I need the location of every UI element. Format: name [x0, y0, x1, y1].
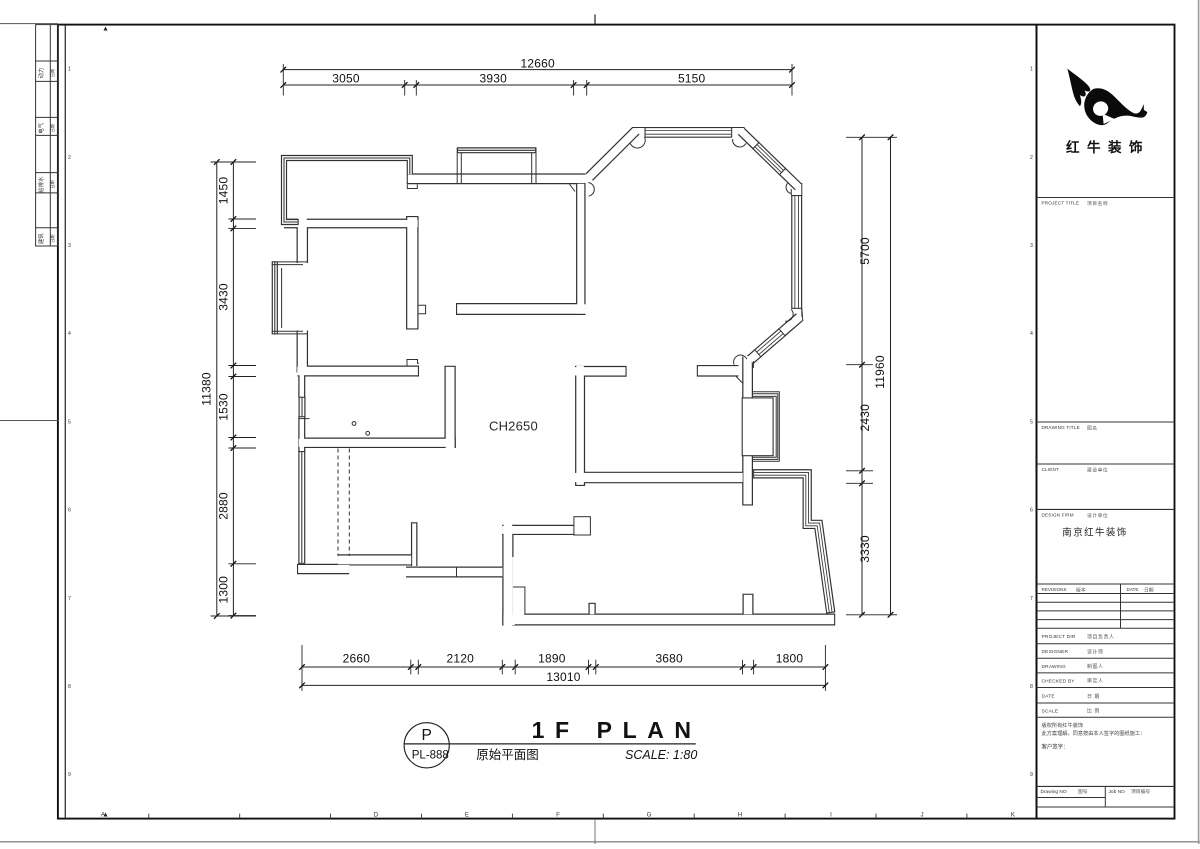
svg-text:客户签字：: 客户签字：	[1042, 743, 1069, 751]
svg-text:2: 2	[68, 155, 71, 161]
svg-text:图名: 图名	[1087, 425, 1098, 432]
svg-text:1300: 1300	[216, 576, 230, 604]
svg-text:PL-888: PL-888	[412, 750, 449, 762]
svg-text:建筑: 建筑	[37, 233, 45, 244]
svg-text:3680: 3680	[655, 652, 683, 666]
svg-text:1: 1	[1030, 67, 1033, 73]
svg-text:5150: 5150	[678, 72, 706, 86]
svg-text:DRAWING TITLE: DRAWING TITLE	[1042, 425, 1080, 430]
svg-text:12660: 12660	[521, 56, 555, 70]
svg-text:比 例: 比 例	[1087, 708, 1100, 715]
svg-text:G: G	[647, 811, 652, 818]
svg-text:DATE: DATE	[1127, 587, 1139, 592]
svg-text:1800: 1800	[776, 652, 804, 666]
svg-text:9: 9	[68, 772, 71, 778]
svg-text:H: H	[738, 811, 742, 818]
svg-text:J: J	[920, 811, 923, 818]
svg-text:红牛装饰: 红牛装饰	[1066, 139, 1150, 155]
svg-text:9: 9	[1030, 772, 1033, 778]
svg-text:动力: 动力	[37, 68, 45, 79]
svg-text:Job NO: Job NO	[1109, 789, 1126, 795]
svg-text:5700: 5700	[858, 237, 872, 265]
svg-text:3: 3	[1030, 243, 1033, 249]
svg-text:5: 5	[1030, 419, 1033, 425]
svg-text:P: P	[422, 727, 432, 744]
svg-text:项目名称: 项目名称	[1087, 200, 1108, 207]
svg-text:7: 7	[68, 596, 71, 602]
svg-text:CLIENT: CLIENT	[1042, 467, 1060, 472]
svg-text:DRAWING: DRAWING	[1042, 664, 1066, 670]
svg-text:日 期: 日 期	[1087, 694, 1100, 700]
svg-text:版本: 版本	[1076, 587, 1086, 594]
svg-text:7: 7	[1030, 596, 1033, 602]
svg-text:PROJECT DIR: PROJECT DIR	[1042, 634, 1076, 640]
svg-text:1: 1	[68, 67, 71, 73]
svg-text:2880: 2880	[216, 492, 230, 520]
svg-text:3430: 3430	[216, 283, 230, 311]
svg-text:1890: 1890	[538, 652, 566, 666]
svg-text:2120: 2120	[447, 652, 475, 666]
svg-text:此方案理解，同意按由本人签字的图纸施工：: 此方案理解，同意按由本人签字的图纸施工：	[1042, 729, 1146, 737]
svg-text:2430: 2430	[858, 404, 872, 432]
svg-text:6: 6	[1030, 508, 1033, 514]
svg-text:建设单位: 建设单位	[1087, 467, 1108, 474]
svg-text:4: 4	[1030, 331, 1033, 337]
svg-text:13010: 13010	[546, 670, 580, 684]
svg-text:版权所有红牛装饰: 版权所有红牛装饰	[1042, 721, 1084, 729]
svg-text:11960: 11960	[873, 355, 887, 389]
svg-text:原始平面图: 原始平面图	[476, 748, 539, 762]
svg-text:I: I	[830, 811, 832, 818]
svg-text:3330: 3330	[858, 535, 872, 563]
svg-text:项目编号: 项目编号	[1131, 788, 1150, 795]
svg-text:D: D	[374, 811, 379, 818]
svg-text:DESIGN FIRM: DESIGN FIRM	[1042, 512, 1074, 517]
svg-text:审定人: 审定人	[1087, 678, 1104, 685]
svg-text:E: E	[465, 811, 469, 818]
svg-text:设计师: 设计师	[1087, 649, 1104, 656]
svg-text:项目负责人: 项目负责人	[1087, 634, 1115, 641]
svg-text:CH2650: CH2650	[489, 419, 538, 434]
svg-text:5: 5	[68, 419, 71, 425]
svg-text:F: F	[556, 811, 560, 818]
svg-text:11380: 11380	[200, 372, 214, 406]
svg-text:给排水: 给排水	[37, 176, 45, 193]
svg-text:2: 2	[1030, 155, 1033, 161]
svg-text:Drawing NO: Drawing NO	[1041, 789, 1067, 795]
svg-text:3050: 3050	[332, 72, 360, 86]
svg-text:1530: 1530	[216, 393, 230, 421]
svg-text:2660: 2660	[343, 652, 371, 666]
svg-text:电气: 电气	[37, 122, 45, 133]
svg-text:3930: 3930	[480, 72, 508, 86]
svg-text:3: 3	[68, 243, 71, 249]
svg-text:制图人: 制图人	[1087, 663, 1104, 670]
svg-text:设计单位: 设计单位	[1087, 512, 1108, 519]
svg-text:DATE: DATE	[1042, 694, 1055, 700]
svg-text:图号: 图号	[1078, 789, 1088, 795]
svg-text:8: 8	[1030, 684, 1033, 690]
svg-text:1450: 1450	[216, 177, 230, 205]
svg-text:8: 8	[68, 684, 71, 690]
svg-text:日期: 日期	[1144, 588, 1154, 594]
svg-text:PROJECT TITLE: PROJECT TITLE	[1042, 201, 1080, 206]
svg-text:DESIGNER: DESIGNER	[1042, 649, 1069, 655]
svg-text:REVISIONS: REVISIONS	[1042, 587, 1067, 592]
svg-text:4: 4	[68, 331, 71, 337]
svg-text:南京红牛装饰: 南京红牛装饰	[1062, 527, 1127, 539]
svg-text:SCALE: 1:80: SCALE: 1:80	[625, 748, 697, 762]
svg-text:SCALE: SCALE	[1042, 708, 1059, 714]
svg-text:CHECKED BY: CHECKED BY	[1042, 678, 1076, 684]
svg-text:1F PLAN: 1F PLAN	[532, 717, 702, 743]
svg-text:6: 6	[68, 508, 71, 514]
